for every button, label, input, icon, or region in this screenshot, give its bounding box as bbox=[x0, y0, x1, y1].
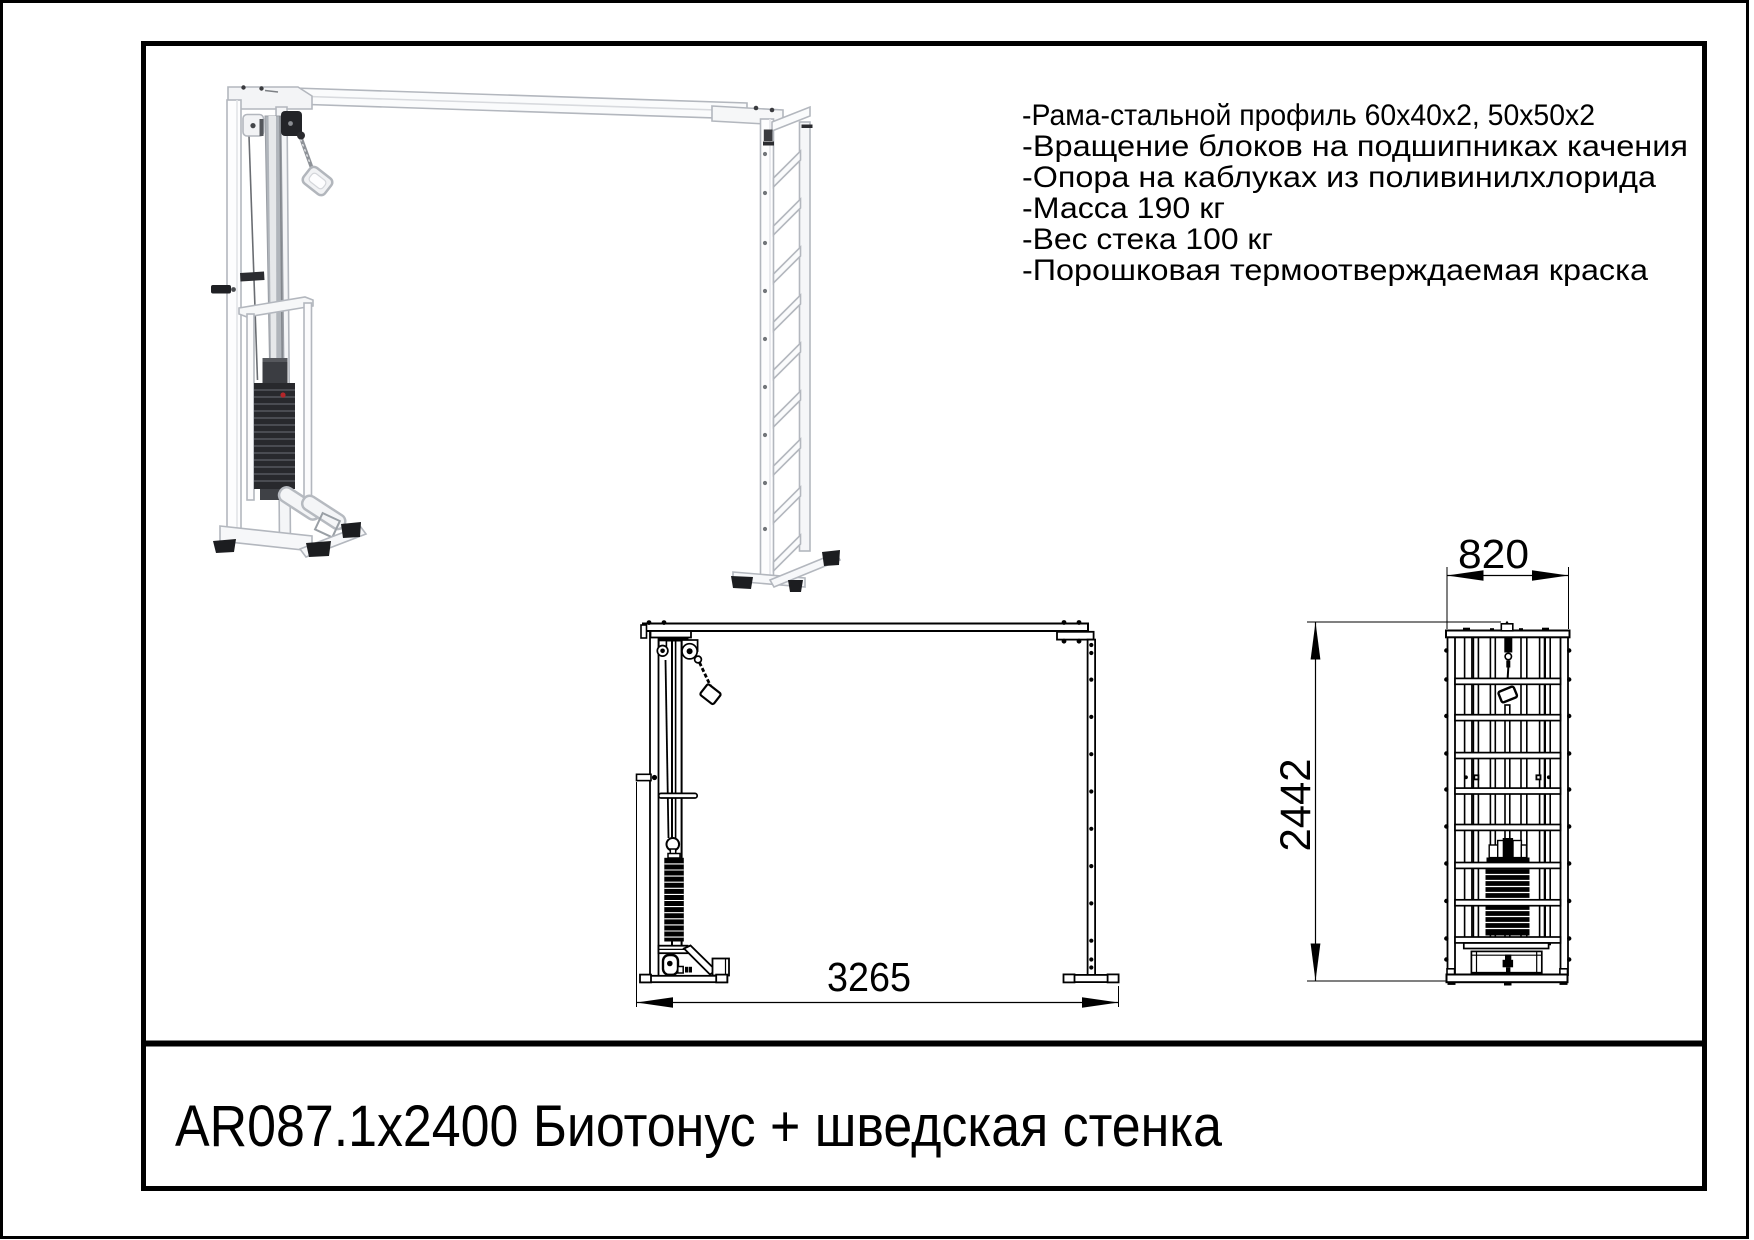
svg-text:820: 820 bbox=[1458, 531, 1529, 577]
svg-text:AR087.1x2400 Биотонус + шведск: AR087.1x2400 Биотонус + шведская стенка bbox=[175, 1094, 1223, 1159]
svg-text:-Опора на каблуках из поливини: -Опора на каблуках из поливинилхлорида bbox=[1022, 161, 1656, 194]
svg-text:-Масса 190 кг: -Масса 190 кг bbox=[1022, 192, 1225, 225]
svg-text:3265: 3265 bbox=[827, 954, 911, 1000]
svg-text:-Порошковая термоотверждаемая: -Порошковая термоотверждаемая краска bbox=[1022, 254, 1648, 287]
svg-text:-Рама-стальной профиль 60х40х2: -Рама-стальной профиль 60х40х2, 50х50х2 bbox=[1022, 99, 1595, 132]
svg-text:-Вращение блоков на подшипника: -Вращение блоков на подшипниках качения bbox=[1022, 130, 1688, 163]
svg-text:-Вес стека 100 кг: -Вес стека 100 кг bbox=[1022, 223, 1273, 256]
svg-text:2442: 2442 bbox=[1272, 759, 1320, 852]
